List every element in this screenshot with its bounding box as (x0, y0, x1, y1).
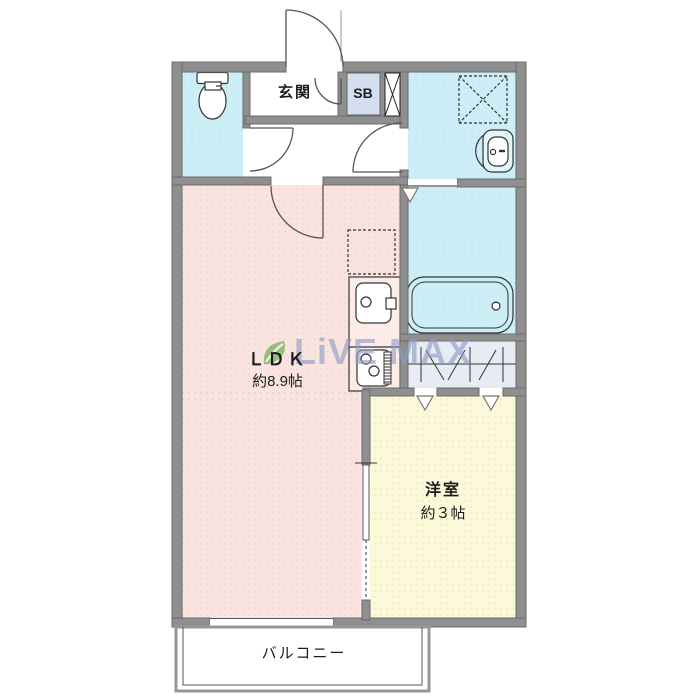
wall (172, 177, 271, 185)
wall (400, 72, 408, 128)
ldk-size: 約8.9帖 (205, 373, 350, 392)
wall (362, 600, 370, 620)
kitchen-counter (349, 277, 400, 391)
wall (362, 390, 370, 465)
wall (457, 179, 526, 187)
wall (245, 116, 408, 124)
floor-plan-canvas: LiVE MAX 玄関 SB ＬＤＫ 約8.9帖 洋室 約３帖 バルコニー (0, 0, 700, 700)
kitchen-sink-icon (356, 283, 396, 323)
shoebox-label: SB (346, 85, 380, 103)
texture (182, 390, 362, 618)
toilet-icon (197, 73, 228, 120)
wall (516, 62, 526, 627)
ldk-label: ＬＤＫ 約8.9帖 (205, 349, 350, 392)
genkan-label: 玄関 (250, 84, 340, 103)
pipe-space-icon (385, 73, 400, 116)
floor-hallway (250, 124, 400, 177)
wall (343, 62, 526, 72)
wall (172, 62, 182, 627)
wall (503, 388, 526, 396)
floor-plan-drawing (0, 0, 700, 700)
wall (363, 388, 414, 396)
balcony-label: バルコニー (220, 645, 388, 664)
wall (400, 185, 408, 395)
wall (172, 62, 286, 72)
wall (437, 388, 479, 396)
stove-icon (357, 350, 391, 386)
texture (408, 187, 516, 334)
wall (400, 334, 526, 341)
ldk-name: ＬＤＫ (205, 349, 350, 370)
wall (323, 177, 408, 185)
entrance-door-swing-icon (286, 10, 343, 67)
western-room-label: 洋室 約３帖 (378, 481, 508, 524)
western-room-name: 洋室 (378, 481, 508, 501)
wall (380, 72, 385, 116)
western-room-size: 約３帖 (378, 505, 508, 524)
sliding-opening (408, 179, 457, 187)
